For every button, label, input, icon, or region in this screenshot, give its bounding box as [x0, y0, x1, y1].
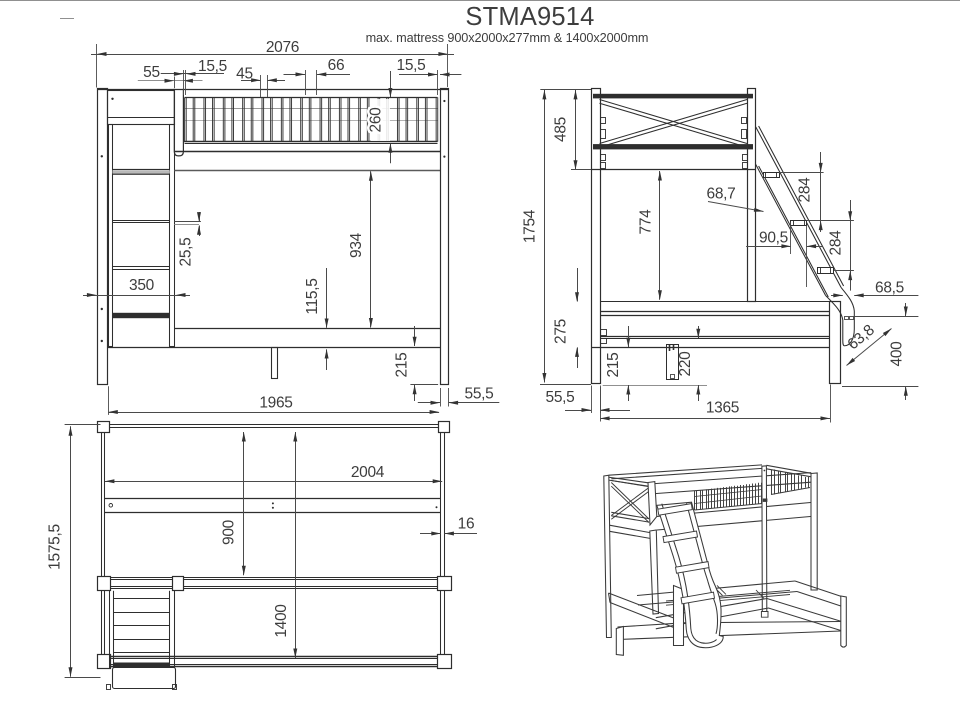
svg-text:284: 284 [828, 230, 845, 256]
svg-text:1365: 1365 [706, 400, 739, 417]
svg-text:900: 900 [221, 519, 238, 545]
svg-text:400: 400 [889, 341, 906, 367]
svg-text:55,5: 55,5 [465, 386, 494, 403]
svg-text:1575,5: 1575,5 [47, 524, 64, 570]
svg-text:2004: 2004 [351, 464, 385, 481]
svg-text:485: 485 [553, 117, 570, 142]
svg-text:284: 284 [797, 177, 814, 203]
svg-text:66: 66 [328, 57, 345, 74]
svg-text:215: 215 [394, 353, 411, 378]
svg-text:215: 215 [605, 353, 622, 378]
svg-text:16: 16 [458, 516, 475, 533]
svg-text:260: 260 [368, 107, 385, 133]
svg-text:max. mattress 900x2000x277mm &: max. mattress 900x2000x277mm & 1400x2000… [366, 31, 649, 45]
svg-text:15,5: 15,5 [198, 58, 227, 75]
svg-text:15,5: 15,5 [397, 57, 426, 74]
svg-text:55,5: 55,5 [546, 389, 575, 406]
svg-text:934: 934 [348, 232, 365, 258]
svg-text:68,7: 68,7 [707, 186, 736, 203]
svg-text:275: 275 [553, 319, 570, 344]
svg-text:1754: 1754 [522, 209, 539, 243]
svg-text:68,5: 68,5 [875, 280, 904, 297]
svg-text:220: 220 [677, 351, 694, 377]
svg-text:45: 45 [236, 66, 253, 83]
svg-text:115,5: 115,5 [304, 278, 321, 314]
svg-text:350: 350 [129, 277, 155, 294]
svg-text:90,5: 90,5 [759, 230, 788, 247]
svg-text:1400: 1400 [273, 604, 290, 638]
svg-text:1965: 1965 [259, 395, 292, 412]
svg-text:55: 55 [143, 64, 160, 81]
svg-text:774: 774 [638, 209, 655, 235]
svg-text:25,5: 25,5 [178, 238, 195, 267]
svg-text:STMA9514: STMA9514 [465, 3, 594, 31]
svg-text:2076: 2076 [266, 39, 299, 56]
